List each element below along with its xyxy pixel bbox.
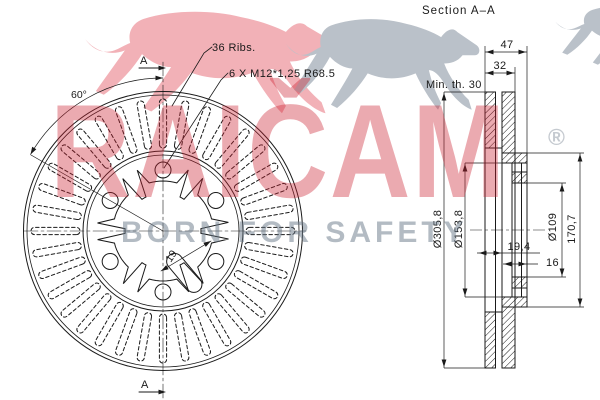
total-width-label: 47	[500, 39, 513, 51]
pad-thickness-label: 16	[546, 257, 559, 269]
outer-diameter-label: Ø305,8	[432, 210, 444, 248]
angle-label: 60°	[71, 89, 87, 101]
outer-pad-bottom	[502, 307, 515, 368]
hat-flange-top	[512, 172, 527, 183]
min-thickness-label: Min. th. 30	[426, 79, 482, 91]
section-title: Section A–A	[422, 5, 496, 17]
inner-pad-top	[485, 92, 496, 148]
hat-flange-bottom	[512, 277, 527, 288]
bolt-spec-label: 6 X M12*1,25 R68.5	[229, 68, 335, 80]
cut-label-bottom: A	[141, 379, 149, 391]
brake-disc-technical-drawing: A A 60° 36 Ribs. 6 X M12*1,25 R68.5 19 S…	[0, 0, 600, 400]
outer-pad-top	[502, 92, 515, 153]
hat-height-label: 170,7	[566, 214, 578, 244]
inner-pad-bottom	[485, 312, 496, 368]
hat-diameter-label: Ø153,8	[453, 210, 465, 248]
bolt-circle-diameter-label: Ø109	[547, 213, 559, 242]
offset-label: 19,4	[507, 241, 530, 253]
drawing-canvas: A A 60° 36 Ribs. 6 X M12*1,25 R68.5 19 S…	[0, 0, 600, 400]
pads-width-label: 32	[493, 60, 506, 72]
cut-label-top: A	[140, 55, 148, 67]
ribs-label: 36 Ribs.	[212, 42, 256, 54]
